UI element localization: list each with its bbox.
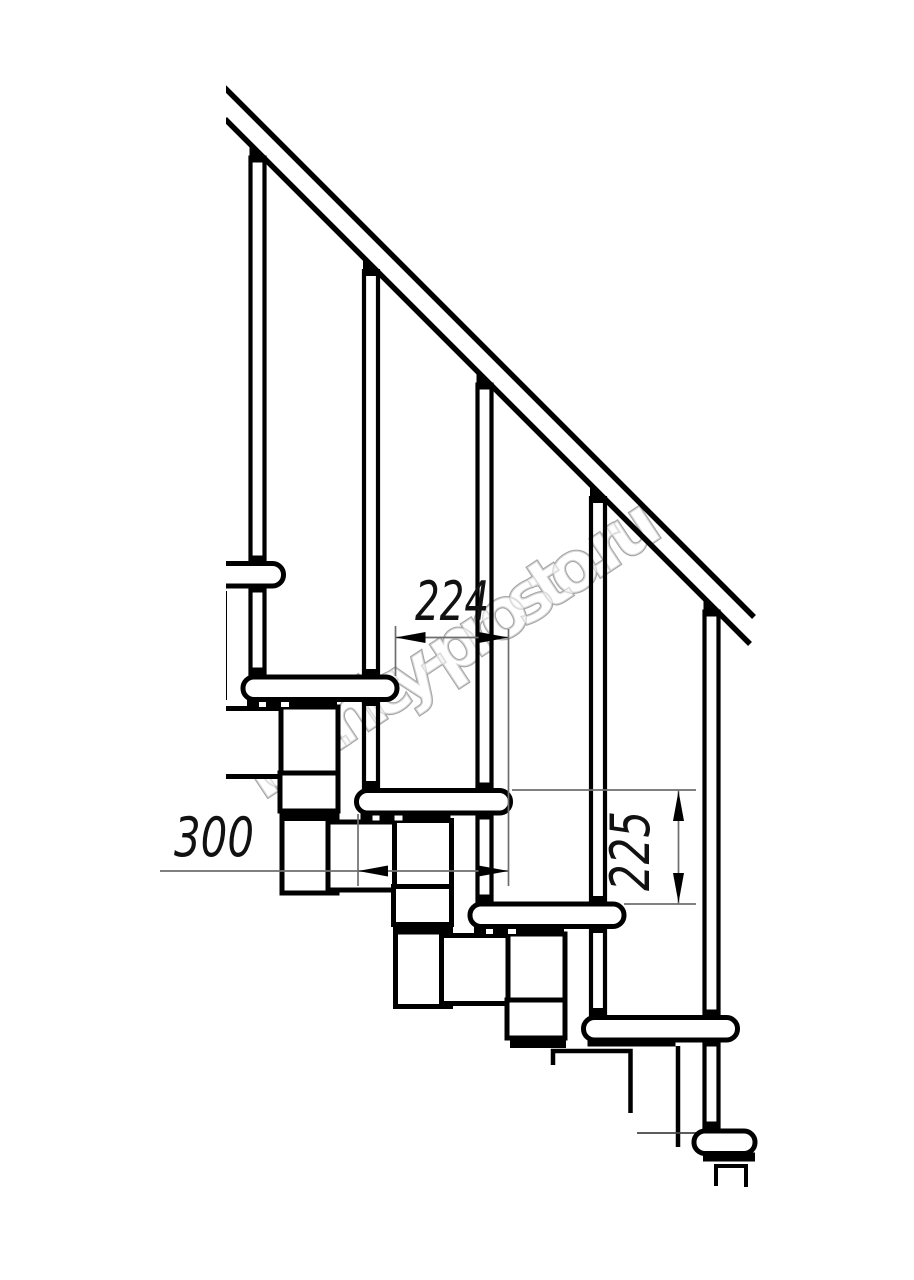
tread [357, 791, 511, 814]
module-column-lower [507, 1000, 565, 1038]
baluster-foot-connector [703, 1122, 721, 1132]
baluster-foot-connector [589, 1008, 607, 1018]
tread [130, 564, 284, 587]
module-column-lower [280, 773, 338, 811]
module-column-upper [281, 707, 338, 773]
baluster-foot-connector [249, 668, 267, 678]
baluster-collar-top [363, 669, 379, 677]
tread-mount-strip [134, 585, 224, 594]
baluster-collar-bottom [363, 700, 379, 706]
module-column-lower [167, 660, 225, 698]
module-column-upper [168, 594, 225, 660]
module-column-extension [169, 700, 224, 780]
handrail-top-edge [224, 87, 754, 617]
mount-strip-notch [281, 702, 289, 707]
mount-strip-notch [395, 816, 403, 821]
baluster-foot-connector [362, 781, 380, 791]
baluster-collar-top [477, 783, 493, 791]
dimension-label-step-rise: 225 [599, 811, 662, 891]
baluster-foot-connector [476, 895, 494, 905]
baluster-collar-top [590, 896, 606, 904]
module-column-cut-edge [716, 1166, 746, 1187]
mount-strip-notch [486, 929, 493, 934]
tread [470, 904, 624, 927]
baluster-collar-bottom [477, 814, 493, 820]
module-column-lower [394, 887, 452, 925]
baluster-collar-top [704, 1010, 720, 1018]
dimension-label-tread-overlap: 224 [415, 570, 489, 633]
dimension-label-tread-depth: 300 [174, 806, 254, 869]
module-joint-strip [510, 1038, 566, 1048]
handrail-bottom-edge [225, 119, 750, 644]
baluster-collar-top [250, 556, 266, 564]
dimension-arrowhead [673, 873, 684, 903]
baluster-collar-bottom [250, 587, 266, 593]
dimension-arrowhead [673, 791, 684, 821]
baluster-collar-bottom [704, 1041, 720, 1047]
staircase-technical-drawing: lestnicy-prosto.ru 224 300 225 [0, 0, 914, 1280]
drawing-svg: lestnicy-prosto.ru 224 300 225 [0, 0, 914, 1280]
tread [243, 677, 397, 700]
module-joint-strip [170, 698, 226, 708]
module-column-upper [395, 821, 452, 887]
mount-strip-notch [373, 816, 380, 821]
tread [694, 1131, 755, 1154]
baluster-collar-bottom [590, 927, 606, 933]
handrail [224, 87, 754, 644]
mount-strip-notch [146, 589, 153, 594]
mount-strip-notch [259, 702, 266, 707]
module-column-upper [508, 934, 565, 1000]
module-joint-box-partial [553, 1051, 631, 1113]
mount-strip-notch [168, 589, 176, 594]
mount-strip-notch [508, 929, 516, 934]
tread [584, 1018, 738, 1041]
